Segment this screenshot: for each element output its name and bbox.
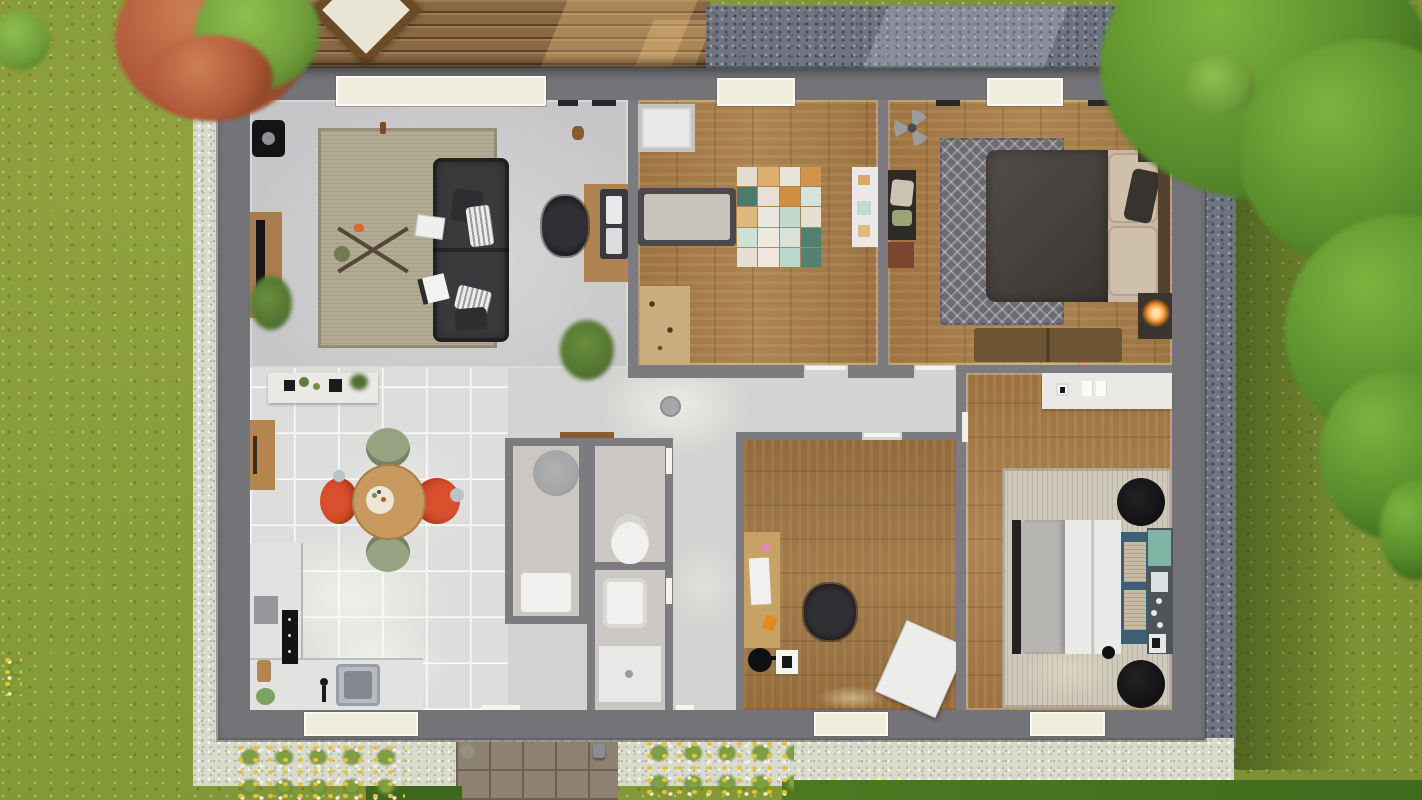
wall-vent xyxy=(558,100,578,106)
bath-door-lintel xyxy=(560,432,614,438)
pillow xyxy=(1108,226,1158,296)
rug-square xyxy=(737,167,757,186)
teal-box xyxy=(1148,530,1171,566)
photo-frame xyxy=(1056,383,1069,396)
kitchen-sink xyxy=(336,664,380,706)
rug-square xyxy=(737,228,757,247)
ceiling-fan xyxy=(894,110,930,146)
rug-square xyxy=(780,228,800,247)
coffee-table-books xyxy=(415,214,446,240)
wall-vent xyxy=(592,100,616,106)
rug-square xyxy=(758,167,778,186)
gravel-sun-streak xyxy=(863,6,1068,68)
ceiling-light xyxy=(660,396,681,417)
plant xyxy=(250,276,292,330)
rug-square xyxy=(758,228,778,247)
desk-papers xyxy=(749,558,771,605)
window-sliver xyxy=(676,705,694,710)
window-master xyxy=(987,78,1063,106)
office-chair xyxy=(804,584,856,640)
office-wall-left xyxy=(736,432,744,710)
shelf-toy xyxy=(858,175,870,185)
flower-bed xyxy=(233,742,405,800)
light-glow xyxy=(664,540,744,630)
window-kids xyxy=(717,78,795,106)
pan xyxy=(748,648,772,672)
ceiling-unit-hub xyxy=(262,132,275,145)
window-kitchen xyxy=(304,712,418,736)
cabinet-small xyxy=(888,242,914,268)
bedside-lamp xyxy=(1142,299,1170,327)
window-sliver xyxy=(482,705,520,710)
bedroom2-shelf xyxy=(1042,373,1172,409)
play-mat xyxy=(640,286,690,365)
plate xyxy=(366,486,394,514)
plant-small xyxy=(299,377,309,387)
toy-box xyxy=(776,650,798,674)
wall-hall-north xyxy=(628,365,958,378)
window-living xyxy=(336,76,546,106)
laptop xyxy=(606,196,622,224)
hedge-strip xyxy=(782,780,1422,800)
window-office xyxy=(814,712,888,736)
drain xyxy=(625,670,633,678)
panel-dot xyxy=(1151,610,1157,616)
cooktop-knob xyxy=(288,634,291,637)
chair-armrest xyxy=(450,488,464,502)
rug-square xyxy=(758,187,778,206)
shower-room xyxy=(505,438,587,624)
round-rug-black xyxy=(1117,660,1165,708)
sticky-note xyxy=(762,544,770,552)
bed2-headboard xyxy=(1012,520,1021,654)
keyboard xyxy=(606,228,622,254)
wall-oven xyxy=(254,596,278,624)
wall-vent xyxy=(936,100,960,106)
desk-item-orange xyxy=(762,614,778,631)
window-bedroom2 xyxy=(1030,712,1105,736)
master-bed-duvet xyxy=(986,150,1108,302)
wc-room xyxy=(587,438,673,570)
shower-tray xyxy=(597,644,663,704)
flower-bed xyxy=(0,654,22,696)
rug-square xyxy=(758,248,778,267)
kids-door-leaf xyxy=(806,366,846,370)
panel-card xyxy=(1151,572,1168,592)
rug-square xyxy=(801,167,821,186)
white-gravel-left xyxy=(193,58,218,740)
shelf-toy xyxy=(858,225,870,237)
bedroom2-door-leaf xyxy=(962,412,968,442)
ceiling-unit xyxy=(252,120,285,157)
rug-square xyxy=(801,187,821,206)
shelf-papers xyxy=(1082,381,1092,396)
office-desk xyxy=(744,532,780,648)
chair-armrest xyxy=(333,470,345,482)
bath-door-leaf xyxy=(666,578,672,604)
office-wall-top xyxy=(736,432,965,440)
wall-kids-master xyxy=(878,100,888,368)
rug-square xyxy=(801,228,821,247)
photo-frame xyxy=(329,379,342,392)
bed-end-bench xyxy=(974,328,1122,362)
bench-slot xyxy=(253,436,257,474)
toy-box-inner xyxy=(782,656,792,668)
plant-small xyxy=(313,383,320,390)
red-tree-canopy xyxy=(148,35,273,120)
rug-square xyxy=(758,207,778,226)
bathroom xyxy=(587,570,673,710)
tree-branch xyxy=(1185,55,1255,115)
shelf-papers xyxy=(1096,381,1106,396)
bench xyxy=(250,420,275,490)
rug-square xyxy=(780,207,800,226)
cooktop-knob xyxy=(288,618,291,621)
kids-play-rug xyxy=(737,167,821,267)
food xyxy=(372,493,377,498)
dining-chair-green xyxy=(366,428,410,468)
shelf-toy xyxy=(857,201,871,215)
toilet xyxy=(611,514,649,564)
photo-frame xyxy=(284,380,295,391)
wall-living-kids xyxy=(628,100,638,368)
card-mark xyxy=(1152,638,1160,648)
rug-square xyxy=(801,207,821,226)
decor-orange xyxy=(354,224,364,232)
wardrobe xyxy=(638,104,695,152)
pouf xyxy=(334,246,350,262)
bed2-bench-blue xyxy=(1121,532,1149,644)
sun-patch xyxy=(816,686,888,710)
round-rug-black xyxy=(1117,478,1165,526)
clothes-pile xyxy=(892,210,912,226)
dresser xyxy=(888,170,916,240)
clothes-pile xyxy=(890,179,915,207)
photo-dot xyxy=(1060,387,1065,393)
wardrobe-front xyxy=(644,110,689,146)
rug-square xyxy=(737,248,757,267)
bench-cushion xyxy=(1124,542,1146,582)
panel-dot xyxy=(1157,622,1163,628)
master-door-leaf xyxy=(916,366,954,370)
rug-square xyxy=(737,207,757,226)
bed2-duvet xyxy=(1065,520,1121,654)
office-door-leaf xyxy=(864,433,900,437)
plant-small xyxy=(350,374,368,390)
bath-door-leaf xyxy=(666,448,672,474)
rug-square xyxy=(780,167,800,186)
food xyxy=(381,497,386,502)
panel-card xyxy=(1149,634,1166,653)
food xyxy=(377,490,381,494)
kids-mattress xyxy=(644,194,730,240)
washbasin xyxy=(603,578,647,628)
desk-chair xyxy=(542,196,588,256)
vanity xyxy=(521,570,571,612)
kids-shelf xyxy=(852,167,878,247)
faucet xyxy=(320,678,328,686)
floorplan-render xyxy=(0,0,1422,800)
wall-bedroom2-top xyxy=(956,365,1172,373)
rug-square xyxy=(737,187,757,206)
sink-basin xyxy=(344,671,372,699)
rug-square xyxy=(801,248,821,267)
plant-pot xyxy=(256,688,275,705)
bed2-blanket xyxy=(1021,520,1065,654)
rug-square xyxy=(780,248,800,267)
pendant-light xyxy=(572,126,584,140)
rug-square xyxy=(780,187,800,206)
cooktop xyxy=(282,610,298,664)
garden-lamp xyxy=(593,744,605,758)
shower-head xyxy=(533,450,579,496)
sun-patch xyxy=(1024,644,1114,699)
kids-bed xyxy=(638,188,736,246)
pendant-light xyxy=(380,122,386,134)
flower-bed xyxy=(642,738,794,800)
cooktop-knob xyxy=(288,650,291,653)
cutting-board xyxy=(257,660,271,682)
bench-cushion xyxy=(1124,590,1146,630)
sofa-pillow xyxy=(454,307,488,332)
faucet-stem xyxy=(322,686,326,702)
pegboard-panel xyxy=(1147,528,1173,654)
panel-dot xyxy=(1156,598,1162,604)
